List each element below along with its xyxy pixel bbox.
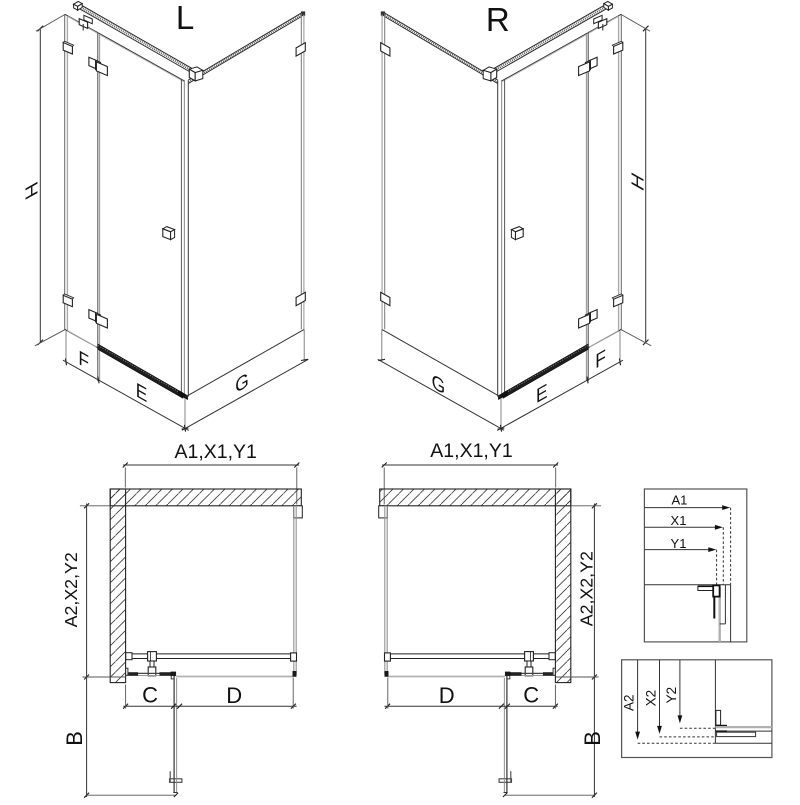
svg-text:B: B (62, 731, 87, 746)
svg-text:A1,X1,Y1: A1,X1,Y1 (430, 440, 512, 462)
svg-text:R: R (486, 1, 510, 38)
svg-text:A2: A2 (621, 694, 636, 711)
svg-text:A2,X2,Y2: A2,X2,Y2 (576, 551, 596, 626)
svg-text:Y2: Y2 (664, 687, 679, 704)
svg-text:A1,X1,Y1: A1,X1,Y1 (175, 441, 257, 463)
svg-text:C: C (523, 683, 539, 708)
svg-text:X1: X1 (671, 513, 687, 528)
svg-text:B: B (580, 731, 605, 746)
svg-text:L: L (176, 0, 194, 36)
svg-text:D: D (226, 683, 242, 708)
svg-text:A1: A1 (671, 492, 687, 507)
svg-text:D: D (439, 683, 455, 708)
svg-text:C: C (142, 683, 158, 708)
svg-text:A2,X2,Y2: A2,X2,Y2 (61, 552, 81, 627)
svg-text:Y1: Y1 (671, 536, 687, 551)
svg-text:X2: X2 (644, 690, 659, 707)
